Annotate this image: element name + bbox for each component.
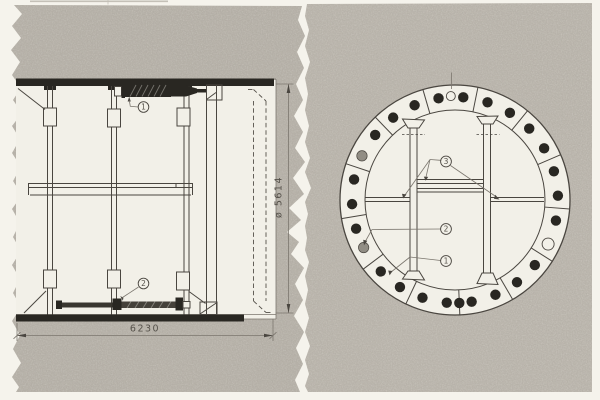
- callout-label: 1: [444, 257, 449, 266]
- post-collar: [108, 109, 121, 127]
- ring-bolt: [417, 293, 427, 303]
- side-view: 1 2: [14, 79, 294, 342]
- shield-skin-bottom: [16, 315, 244, 322]
- ring-bolt: [458, 92, 468, 102]
- ring-bolt: [433, 93, 443, 103]
- ring-bolt: [351, 224, 361, 234]
- post-collar: [108, 270, 121, 288]
- post-collar: [177, 272, 190, 290]
- ring-bolt: [553, 190, 563, 200]
- dimension-diameter: ø 5614: [274, 84, 294, 313]
- callout-label: 2: [444, 225, 449, 234]
- ring-bolt-gray: [358, 242, 368, 252]
- ring-bolt: [549, 166, 559, 176]
- ring-bolt: [490, 290, 500, 300]
- ring-bolt: [524, 123, 534, 133]
- ring-bolt-gray: [357, 151, 367, 161]
- ring-bolt: [466, 296, 476, 306]
- ring-bolt: [551, 215, 561, 225]
- ring-bolt: [349, 174, 359, 184]
- page-edge-smudge: [30, 0, 168, 5]
- dim-width-label: 6230: [130, 324, 160, 335]
- grout-hole: [446, 92, 455, 101]
- jack-rod-tip: [197, 89, 206, 93]
- ring-bolt: [530, 260, 540, 270]
- ring-bolt: [388, 112, 398, 122]
- ring-bolt: [442, 297, 452, 307]
- ring-bolt: [395, 282, 405, 292]
- post-collar: [177, 108, 190, 126]
- technical-drawing: 1 2: [0, 0, 600, 400]
- callout-label: 3: [444, 157, 449, 166]
- callout-label: 2: [141, 279, 146, 288]
- ring-bolt: [512, 277, 522, 287]
- ring-outer-circle: [340, 85, 570, 315]
- post-collar: [44, 270, 57, 288]
- post-collar: [44, 108, 57, 126]
- ring-bolt: [370, 130, 380, 140]
- cross-section: 3 2 1: [340, 73, 570, 316]
- ring-bolt: [454, 298, 464, 308]
- ring-bolt: [376, 266, 386, 276]
- ring-bolt: [347, 199, 357, 209]
- ring-bolt: [482, 97, 492, 107]
- dimension-width: 6230: [14, 319, 277, 341]
- callout-label: 1: [141, 103, 146, 112]
- dim-diameter-label: ø 5614: [274, 176, 285, 218]
- ring-bolt: [505, 108, 515, 118]
- ring-bolt-open: [542, 238, 554, 250]
- ring-bolt: [409, 100, 419, 110]
- ring-bolt: [539, 143, 549, 153]
